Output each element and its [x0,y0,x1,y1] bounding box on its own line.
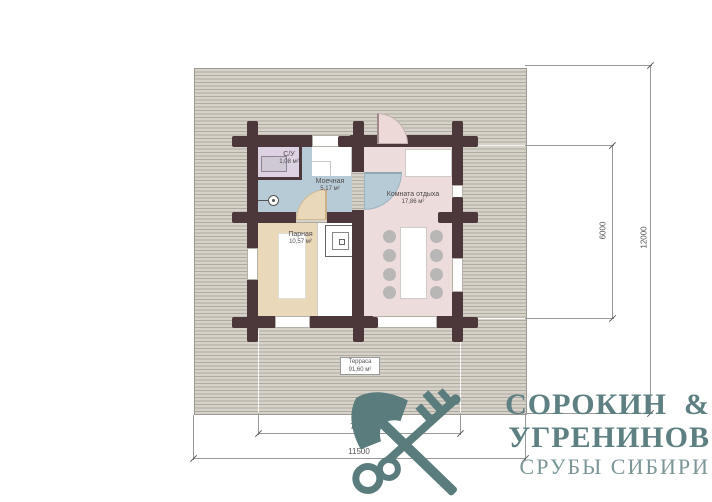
dimension-tick [609,315,616,322]
wall-interior-horizontal [327,212,352,223]
room-area: 1,08 м² [272,159,306,166]
room-area: 10,57 м² [278,239,323,246]
extension-line [525,145,614,146]
terrace-area: 91,60 м² [349,367,372,373]
dining-table [400,227,427,299]
log-cross [452,121,463,161]
chair [430,268,443,281]
shower-dot [272,199,275,202]
extension-line [258,330,259,413]
floor-plan-page: 6000 12000 7000 11500 [0,0,712,502]
window-right [452,258,463,292]
dimension-label-12000: 12000 [640,220,649,256]
logo-text-block: СОРОКИН & УГРЕНИНОВ СРУБЫ СИБИРИ [478,388,710,480]
chair [430,286,443,299]
dimension-label-6000: 6000 [599,216,608,246]
log-cross [247,197,258,237]
logo-title-line1: СОРОКИН & [478,388,710,421]
room-label-komnata: Комната отдыха 17,86 м² [375,191,451,206]
room-name: Моечная [305,178,355,186]
log-cross [452,302,463,342]
room-name: Парная [278,231,323,239]
log-cross [247,121,258,161]
room-label-parnaya: Парная 10,57 м² [278,231,323,246]
log-cross [452,197,463,237]
chair [383,230,396,243]
chair [430,249,443,262]
room-name: С/У [272,151,306,159]
wall-interior-vertical [352,210,364,316]
shower-step [312,147,352,176]
extension-line [525,65,652,66]
chair [383,268,396,281]
logo-subtitle: СРУБЫ СИБИРИ [478,454,710,480]
window-bottom [275,316,310,328]
chair [430,230,443,243]
log-cross [353,302,364,342]
extension-line [193,415,194,460]
room-label-su: С/У 1,08 м² [272,151,306,166]
room-area: 5,17 м² [305,186,355,193]
room-label-moechnaya: Моечная 5,17 м² [305,178,355,193]
chair [383,286,396,299]
window-left [247,248,258,280]
logo-title-line2: УГРЕНИНОВ [478,421,710,454]
chair [383,249,396,262]
sofa [405,149,452,177]
wall-wc [258,177,302,180]
shower-head-icon [268,195,279,206]
dimension-line-12000 [650,65,651,413]
terrace-label: Терраса 91,60 м² [340,357,380,375]
extension-line [525,318,614,319]
room-area: 17,86 м² [375,199,451,206]
stove-core [339,239,345,245]
log-cross [247,302,258,342]
dimension-line-6000 [612,145,613,318]
room-name: Комната отдыха [375,191,451,199]
window-bottom [373,316,437,328]
terrace-name: Терраса [348,359,371,365]
stove-inner [332,232,349,250]
log-cross [353,121,364,161]
axe-key-icon [333,383,485,502]
shower-step-inner [312,161,331,176]
